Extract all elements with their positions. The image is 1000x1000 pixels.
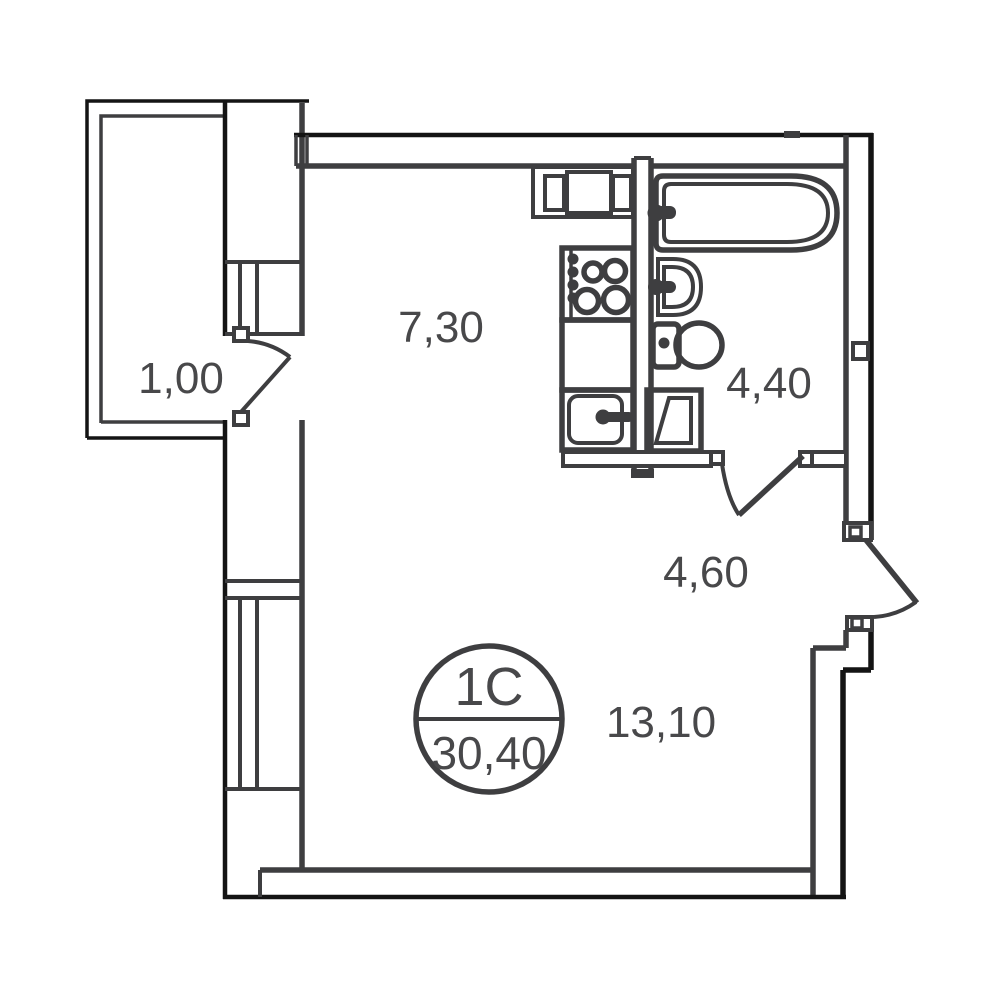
- door-jamb: [234, 328, 248, 341]
- floor-plan-page: 1,00 7,30 4,40 4,60 13,10 1C 30,40: [0, 0, 1000, 1000]
- door-jamb: [234, 412, 248, 425]
- bathroom-wall: [800, 452, 846, 466]
- balcony-area-label: 1,00: [138, 354, 224, 403]
- unit-type-label: 1C: [454, 657, 523, 717]
- background: [0, 0, 1000, 1000]
- bathroom-wall: [563, 452, 711, 466]
- wall-tick: [784, 131, 800, 138]
- unit-badge: 1C 30,40: [416, 646, 562, 792]
- total-area-label: 30,40: [431, 727, 546, 779]
- wall-notch: [853, 343, 868, 359]
- bathroom-area-label: 4,40: [726, 359, 812, 408]
- floor-plan: 1,00 7,30 4,40 4,60 13,10 1C 30,40: [0, 0, 1000, 1000]
- living-room-area-label: 13,10: [606, 698, 716, 747]
- kitchen-area-label: 7,30: [398, 303, 484, 352]
- door-jamb: [711, 452, 723, 464]
- hallway-area-label: 4,60: [663, 548, 749, 597]
